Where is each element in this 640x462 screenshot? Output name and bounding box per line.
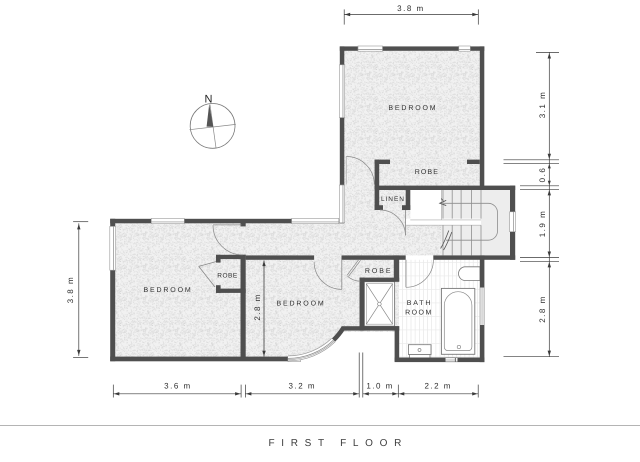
svg-text:LINEN: LINEN (381, 196, 406, 203)
svg-text:ROBE: ROBE (217, 273, 239, 280)
svg-text:2.2 m: 2.2 m (424, 382, 452, 391)
svg-text:1.9 m: 1.9 m (538, 210, 547, 238)
svg-text:BEDROOM: BEDROOM (388, 105, 437, 112)
svg-text:ROBE: ROBE (415, 169, 440, 176)
svg-text:3.2 m: 3.2 m (289, 382, 317, 391)
svg-text:0.6: 0.6 (538, 167, 547, 183)
svg-text:BEDROOM: BEDROOM (144, 287, 193, 294)
svg-text:BEDROOM: BEDROOM (277, 300, 326, 307)
svg-text:2.8 m: 2.8 m (538, 295, 547, 323)
svg-text:3.8 m: 3.8 m (66, 276, 75, 304)
svg-text:ROOM: ROOM (405, 310, 433, 317)
svg-text:2.8 m: 2.8 m (253, 293, 262, 321)
svg-text:N: N (205, 94, 213, 106)
svg-text:3.6 m: 3.6 m (164, 382, 192, 391)
svg-text:1.0 m: 1.0 m (366, 382, 394, 391)
svg-text:ROBE: ROBE (365, 268, 393, 275)
svg-text:BATH: BATH (407, 300, 433, 307)
svg-text:3.8 m: 3.8 m (397, 4, 425, 13)
svg-text:3.1 m: 3.1 m (538, 91, 547, 119)
